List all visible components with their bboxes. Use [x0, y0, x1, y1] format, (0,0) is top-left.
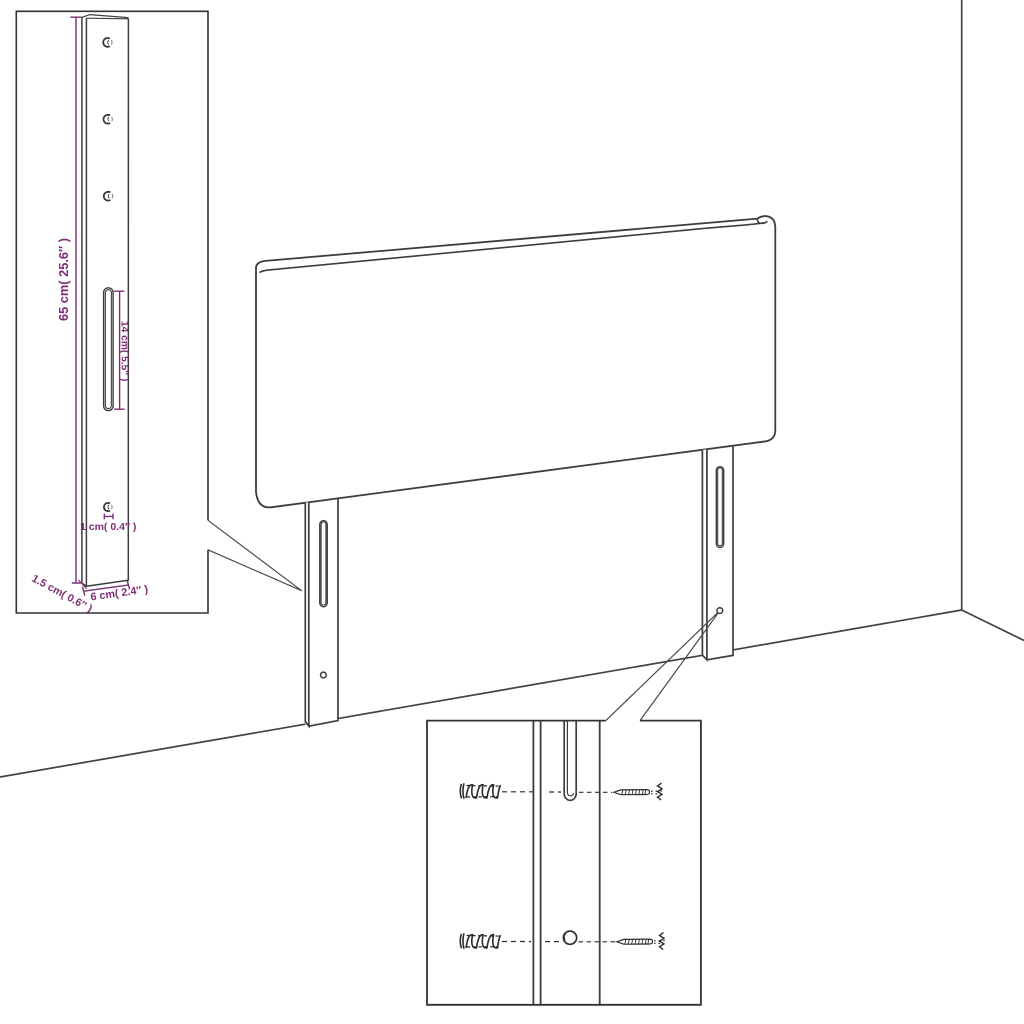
svg-text:65 cm( 25.6″ ): 65 cm( 25.6″ )	[56, 238, 71, 321]
svg-text:6 cm( 2.4″ ): 6 cm( 2.4″ )	[90, 583, 149, 603]
svg-text:14 cm( 5.5″ ): 14 cm( 5.5″ )	[119, 321, 130, 381]
svg-text:1 cm( 0.4″ ): 1 cm( 0.4″ )	[80, 521, 136, 533]
